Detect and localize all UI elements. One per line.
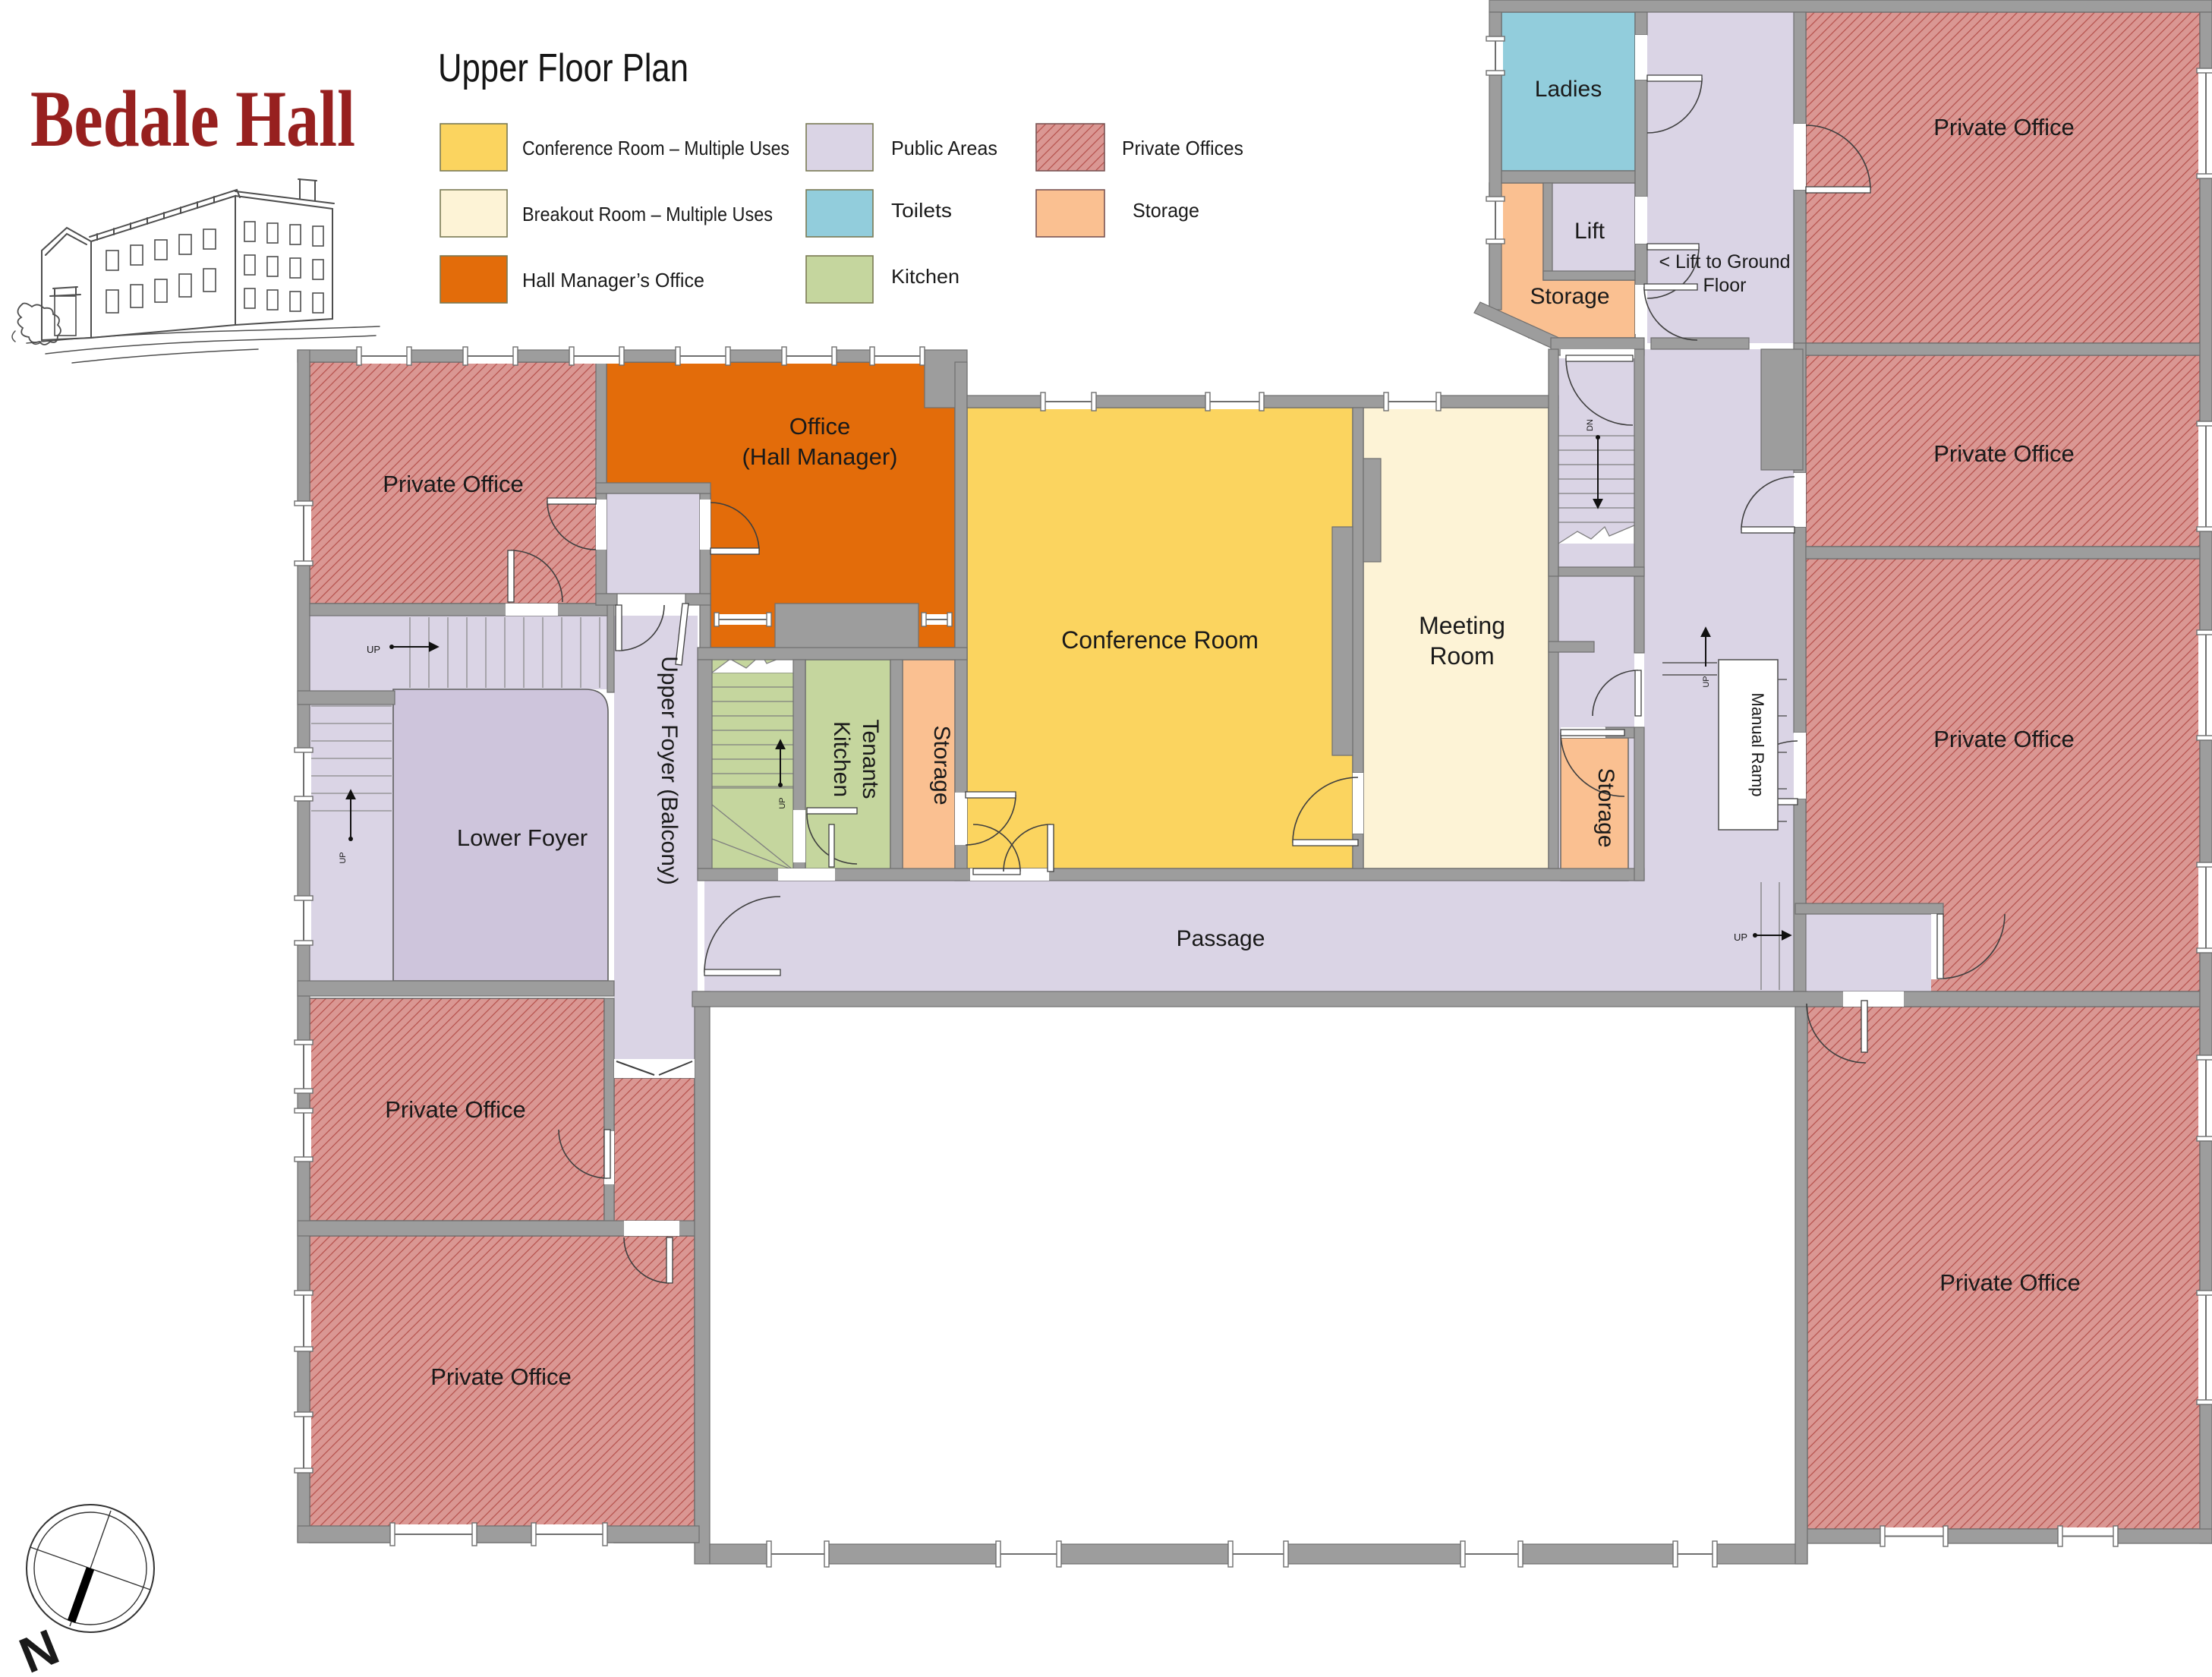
svg-text:Private Office: Private Office [1933,726,2075,752]
svg-text:UP: UP [367,644,380,655]
svg-text:Private Office: Private Office [1939,1269,2081,1296]
svg-text:Private Office: Private Office [383,471,524,497]
svg-text:Lift: Lift [1574,219,1605,244]
svg-text:Kitchen: Kitchen [891,265,959,288]
svg-text:Floor: Floor [1703,275,1747,296]
svg-text:UP: UP [1734,931,1747,943]
svg-text:UP: UP [1702,676,1711,687]
svg-text:Toilets: Toilets [891,199,952,222]
svg-text:< Lift to Ground: < Lift to Ground [1659,251,1790,273]
svg-text:Bedale Hall: Bedale Hall [30,74,355,163]
svg-text:Lower Foyer: Lower Foyer [457,824,588,851]
svg-text:Room: Room [1429,642,1494,670]
svg-text:Storage: Storage [929,725,954,805]
svg-text:Breakout Room – Multiple Uses: Breakout Room – Multiple Uses [522,203,773,225]
svg-text:Manual Ramp: Manual Ramp [1748,693,1767,797]
svg-text:Hall Manager’s Office: Hall Manager’s Office [522,269,704,292]
svg-text:Private Office: Private Office [1933,440,2075,467]
svg-text:Storage: Storage [1530,284,1609,309]
svg-text:(Hall Manager): (Hall Manager) [742,443,897,470]
svg-text:Passage: Passage [1177,926,1265,951]
svg-text:DN: DN [1586,419,1595,431]
svg-text:Upper Floor Plan: Upper Floor Plan [438,46,688,90]
svg-text:Private Offices: Private Offices [1122,137,1243,159]
svg-text:Private Office: Private Office [1933,114,2075,140]
svg-text:Kitchen: Kitchen [829,721,854,797]
svg-text:Tenants: Tenants [858,719,883,799]
svg-text:UP: UP [339,852,348,863]
svg-text:Office: Office [789,413,850,440]
svg-text:Upper Foyer (Balcony): Upper Foyer (Balcony) [657,656,682,885]
svg-text:UP: UP [778,797,787,809]
svg-text:Storage: Storage [1133,199,1199,222]
svg-text:Private Office: Private Office [430,1363,572,1390]
svg-text:Conference Room – Multiple Use: Conference Room – Multiple Uses [522,137,789,159]
svg-text:Ladies: Ladies [1535,77,1602,102]
svg-text:Public Areas: Public Areas [891,137,997,159]
svg-text:Conference Room: Conference Room [1061,626,1259,654]
svg-text:Private Office: Private Office [385,1096,526,1123]
svg-text:Storage: Storage [1593,768,1618,847]
svg-text:Meeting: Meeting [1419,612,1505,639]
